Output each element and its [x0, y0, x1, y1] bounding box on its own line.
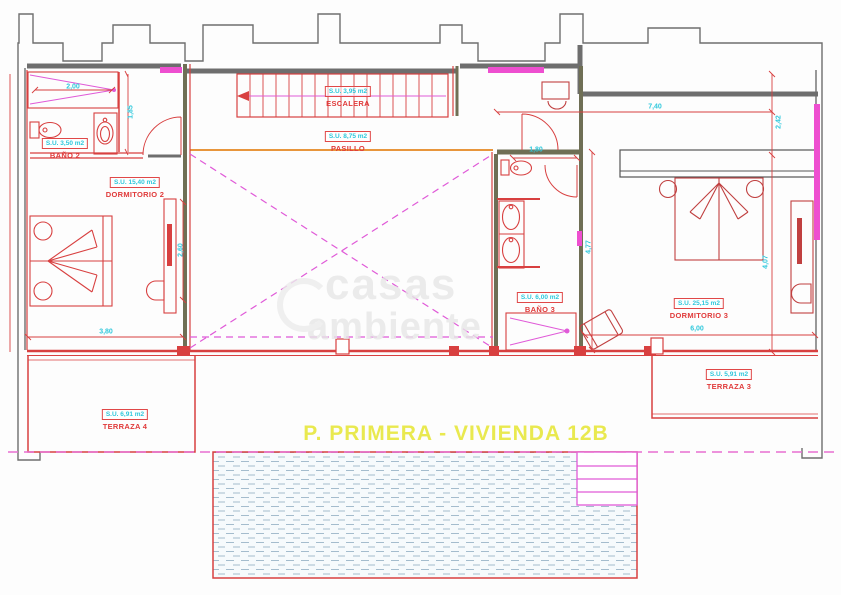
room-name: ESCALERA — [325, 99, 371, 108]
watermark-logo-icon — [277, 278, 331, 332]
dimension-label: 3,80 — [99, 329, 113, 336]
label-layer: casas ambiente S.U. 3,50 m2 BAÑO 2 S.U. … — [0, 0, 841, 595]
room-label-dormitorio-3: S.U. 25,15 m2 DORMITORIO 3 — [670, 292, 728, 320]
room-label-terraza-4: S.U. 6,91 m2 TERRAZA 4 — [102, 403, 148, 431]
room-area-badge: S.U. 3,95 m2 — [325, 86, 371, 97]
dimension-label: 6,00 — [690, 326, 704, 333]
room-area-badge: S.U. 15,40 m2 — [110, 177, 160, 188]
room-name: BAÑO 2 — [42, 151, 88, 160]
room-name: DORMITORIO 2 — [106, 190, 164, 199]
room-name: PASILLO — [325, 144, 371, 153]
room-area-badge: S.U. 25,15 m2 — [674, 298, 724, 309]
dimension-label: 4,77 — [586, 240, 593, 254]
watermark-line2: ambiente — [307, 308, 482, 348]
dimension-label: 1,85 — [128, 105, 135, 119]
room-name: TERRAZA 3 — [706, 382, 752, 391]
plan-title: P. PRIMERA - VIVIENDA 12B — [303, 422, 608, 446]
watermark: casas ambiente — [325, 262, 482, 348]
dimension-label: 2,42 — [776, 115, 783, 129]
room-area-badge: S.U. 3,50 m2 — [42, 138, 88, 149]
watermark-line1: casas — [325, 262, 482, 308]
room-label-bano-3: S.U. 6,00 m2 BAÑO 3 — [517, 286, 563, 314]
room-label-terraza-3: S.U. 5,91 m2 TERRAZA 3 — [706, 363, 752, 391]
room-label-dormitorio-2: S.U. 15,40 m2 DORMITORIO 2 — [106, 171, 164, 199]
floor-plan: casas ambiente S.U. 3,50 m2 BAÑO 2 S.U. … — [0, 0, 841, 595]
dimension-label: 1,80 — [529, 147, 543, 154]
dimension-label: 7,40 — [648, 104, 662, 111]
dimension-label: 2,00 — [66, 84, 80, 91]
room-area-badge: S.U. 6,91 m2 — [102, 409, 148, 420]
room-area-badge: S.U. 6,00 m2 — [517, 292, 563, 303]
room-area-badge: S.U. 5,91 m2 — [706, 369, 752, 380]
room-name: DORMITORIO 3 — [670, 311, 728, 320]
dimension-label: 2,60 — [178, 243, 185, 257]
room-area-badge: S.U. 8,75 m2 — [325, 131, 371, 142]
room-name: TERRAZA 4 — [102, 422, 148, 431]
room-label-pasillo: S.U. 8,75 m2 PASILLO — [325, 125, 371, 153]
room-label-escalera: S.U. 3,95 m2 ESCALERA — [325, 80, 371, 108]
dimension-label: 4,07 — [763, 255, 770, 269]
room-label-bano-2: S.U. 3,50 m2 BAÑO 2 — [42, 132, 88, 160]
room-name: BAÑO 3 — [517, 305, 563, 314]
